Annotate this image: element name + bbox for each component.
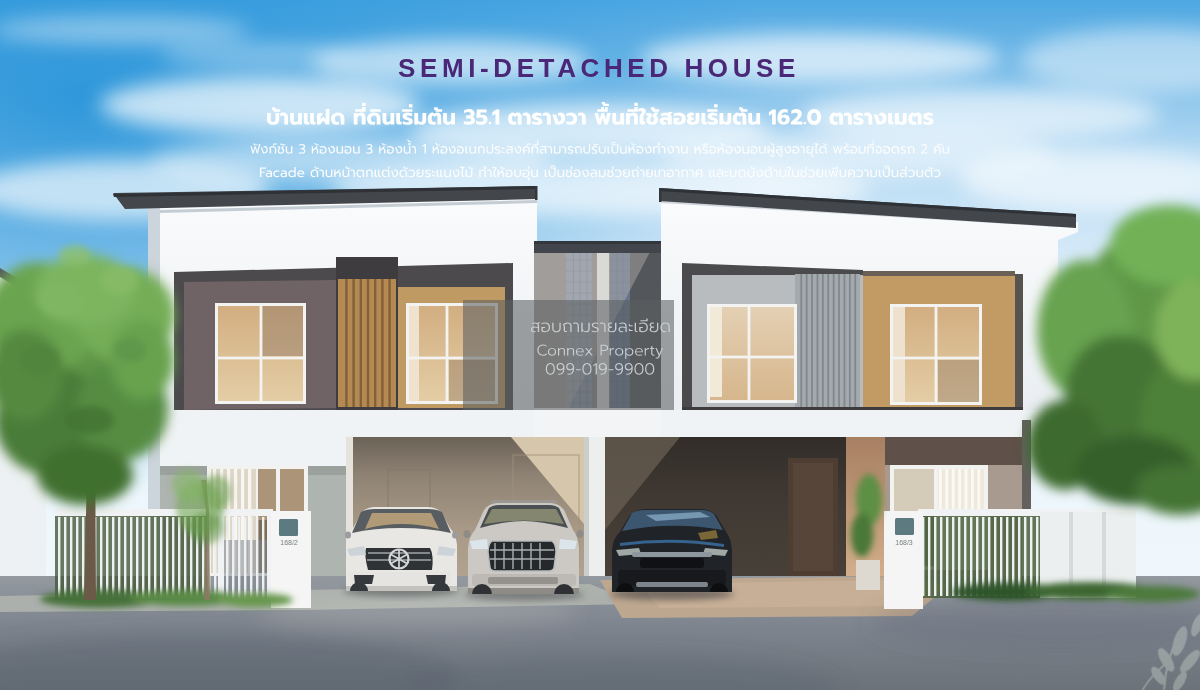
svg-text:SEMI-DETACHED HOUSE: SEMI-DETACHED HOUSE bbox=[398, 53, 800, 83]
svg-text:168/3: 168/3 bbox=[895, 539, 913, 546]
svg-text:168/2: 168/2 bbox=[280, 539, 298, 546]
